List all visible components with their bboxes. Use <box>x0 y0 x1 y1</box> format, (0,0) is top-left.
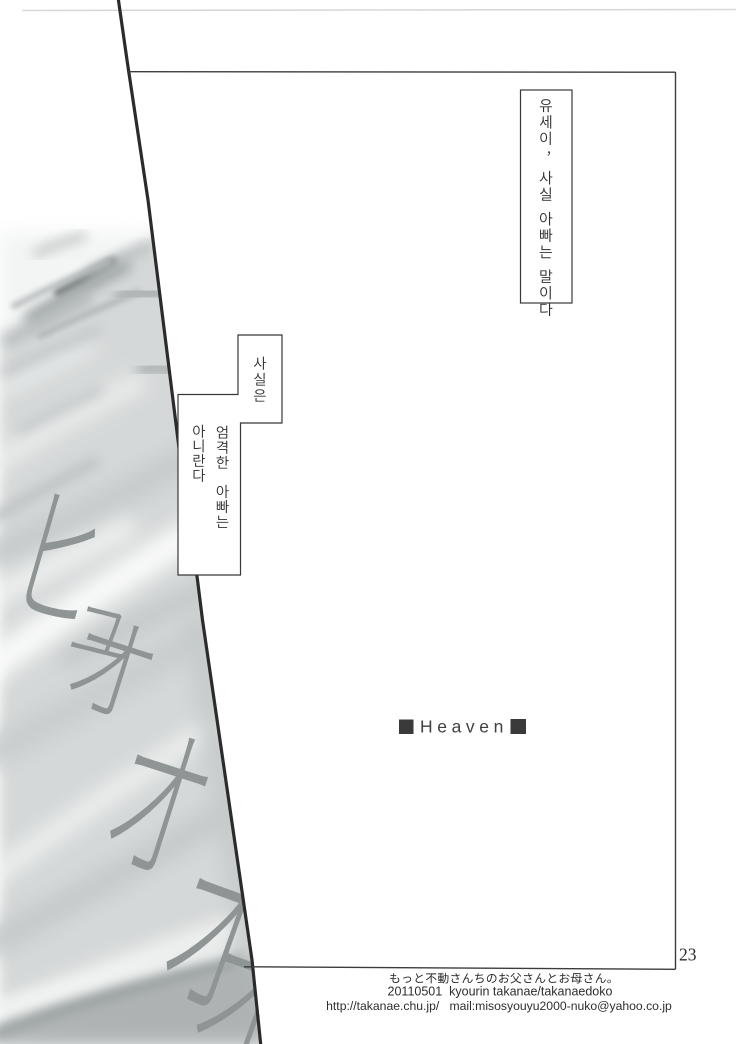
svg-text:http://takanae.chu.jp/ mail:: http://takanae.chu.jp/ mail:misosyouyu20… <box>326 999 672 1013</box>
svg-text:20110501 kyourin takanae/taka: 20110501 kyourin takanae/takanaedoko <box>388 985 613 999</box>
svg-text:23: 23 <box>679 945 697 965</box>
svg-text:Heaven: Heaven <box>420 717 508 737</box>
